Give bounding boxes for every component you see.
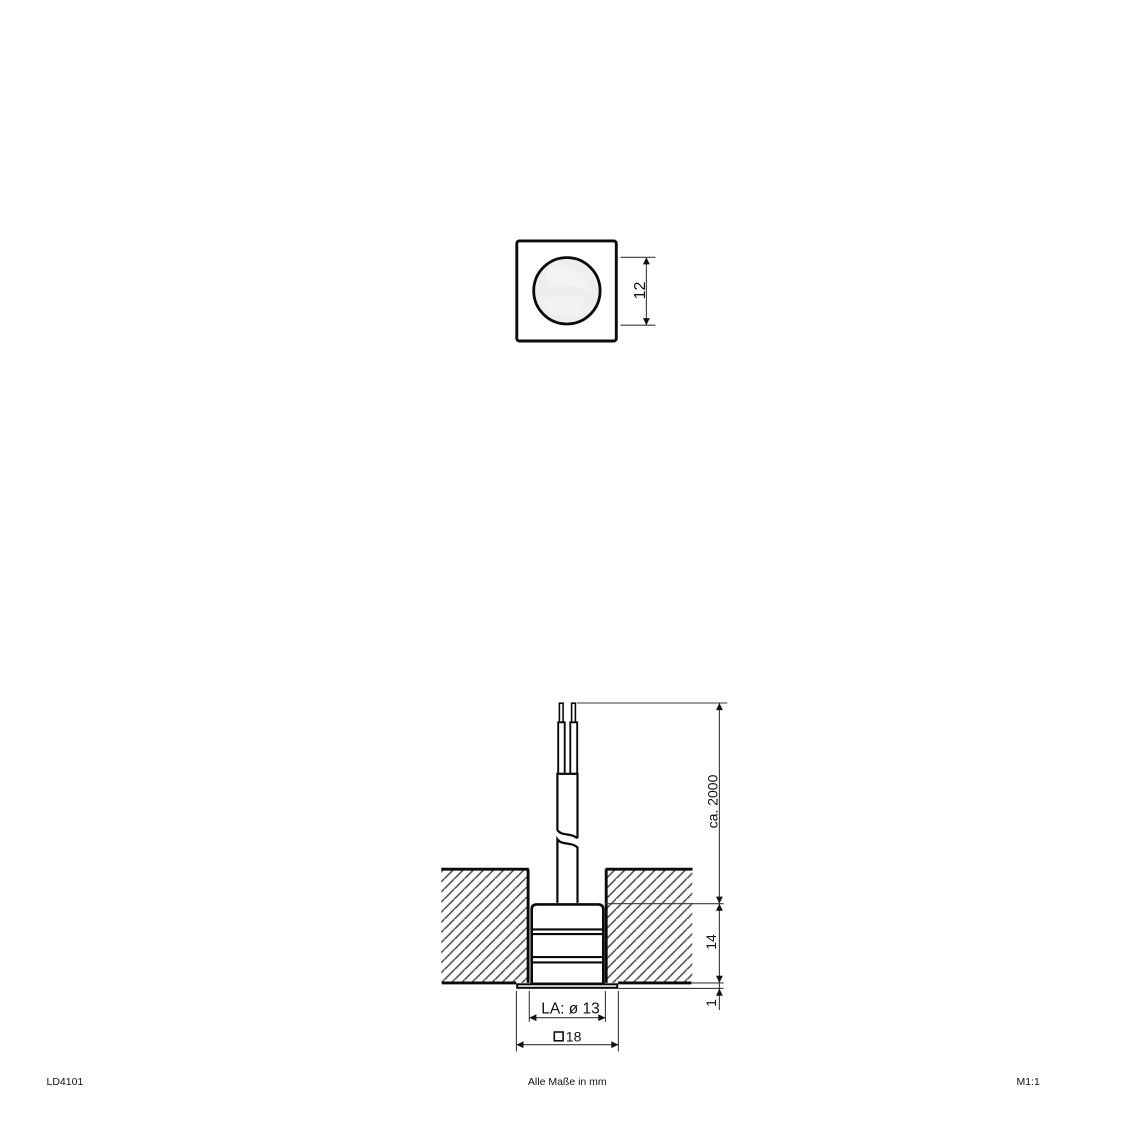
svg-text:LA: ø 13: LA: ø 13 (541, 1001, 600, 1018)
svg-text:LD4101: LD4101 (47, 1076, 84, 1088)
svg-text:ca. 2000: ca. 2000 (705, 774, 721, 828)
svg-text:1: 1 (703, 999, 719, 1007)
svg-text:18: 18 (566, 1029, 582, 1045)
svg-text:14: 14 (703, 934, 719, 950)
svg-text:Alle Maße in mm: Alle Maße in mm (528, 1076, 607, 1088)
svg-text:12: 12 (632, 282, 649, 300)
svg-text:M1:1: M1:1 (1016, 1076, 1040, 1088)
